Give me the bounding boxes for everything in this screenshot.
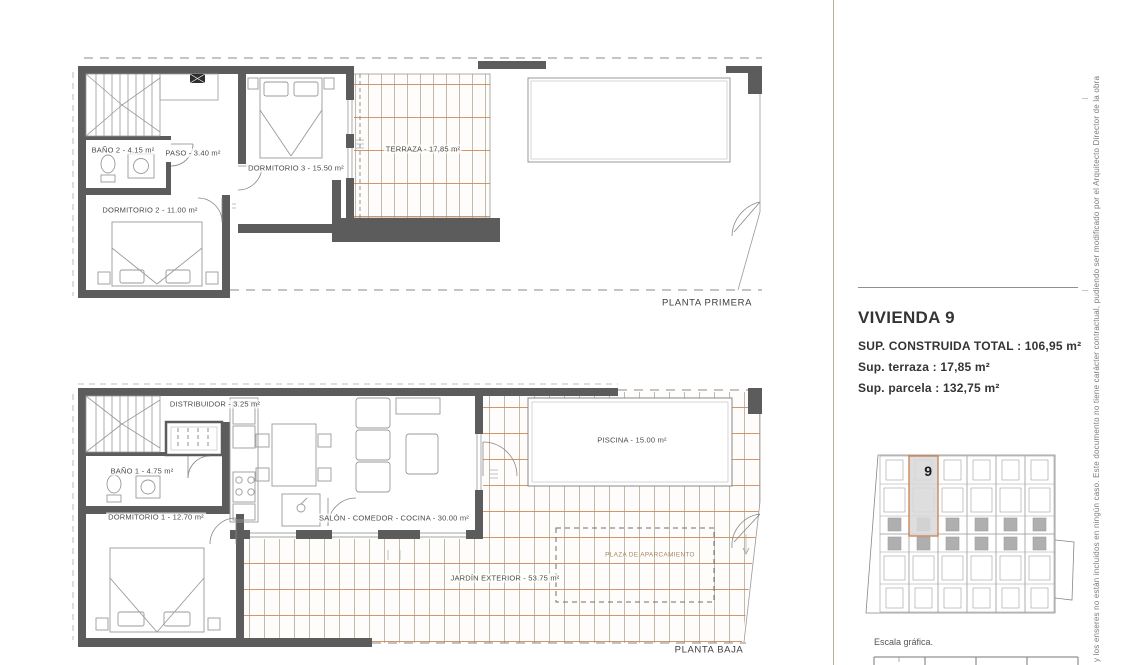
edge-mark [1082,98,1088,99]
vertical-divider [833,0,834,665]
scale-label: Escala gráfica. [874,637,933,647]
kitchen-island [282,494,320,526]
room-label-dorm2: DORMITORIO 2 - 11.00 m² [100,206,199,215]
staircase [86,396,160,452]
room-label-jardin: JARDÍN EXTERIOR - 53.75 m² [449,574,562,583]
ground-floor-title: PLANTA BAJA [675,645,744,656]
room-label-salon: SALÓN - COMEDOR - COCINA - 30.00 m² [317,514,471,523]
bathroom2-fixtures [101,154,154,182]
first-floor-title: PLANTA PRIMERA [662,298,752,309]
plot-open-area [732,94,760,290]
built-area-total: SUP. CONSTRUIDA TOTAL : 106,95 m² [858,339,1090,353]
room-label-piscina: PISCINA - 15.00 m² [595,436,668,445]
graphic-scale-bar [870,650,1084,665]
room-label-dorm3: DORMITORIO 3 - 15.50 m² [246,164,346,173]
dining-table [256,424,331,486]
closet [160,74,218,100]
dwelling-title: VIVIENDA 9 [858,308,1090,328]
summary-rule [858,287,1078,288]
plan-sheet: BAÑO 2 - 4.15 m² PASO - 3.40 m² DORMITOR… [0,0,1130,665]
room-label-dorm1: DORMITORIO 1 - 12.70 m² [106,513,206,522]
room-label-distribuidor: DISTRIBUIDOR - 3.25 m² [168,400,262,409]
room-label-bano2: BAÑO 2 - 4.15 m² [90,146,157,155]
legal-disclaimer: y los enseres no están incluidos en ning… [1092,0,1108,662]
shower [166,422,222,455]
room-label-bano1: BAÑO 1 - 4.75 m² [109,467,176,476]
highlighted-unit-number: 9 [924,463,932,479]
bathroom1-fixtures [107,475,160,502]
first-floor-plan [70,52,775,310]
dimension-marks [232,140,364,208]
terrace-area: Sup. terraza : 17,85 m² [858,360,1090,374]
room-label-terraza: TERRAZA - 17,85 m² [384,145,462,154]
pool-outline [528,78,730,162]
room-label-plaza: PLAZA DE APARCAMIENTO [603,551,697,560]
staircase [86,74,160,136]
dwelling-summary: VIVIENDA 9 SUP. CONSTRUIDA TOTAL : 106,9… [858,308,1090,402]
bed-dorm3 [248,78,334,158]
bed-dorm2 [98,222,218,286]
bed-dorm1 [96,548,220,632]
edge-mark [1082,290,1088,291]
site-location-plan: 9 [856,444,1082,640]
windows [250,434,483,539]
kitchen-counter [230,398,258,522]
sofa [356,398,440,492]
room-label-paso: PASO - 3.40 m² [163,149,222,158]
plot-area: Sup. parcela : 132,75 m² [858,381,1090,395]
